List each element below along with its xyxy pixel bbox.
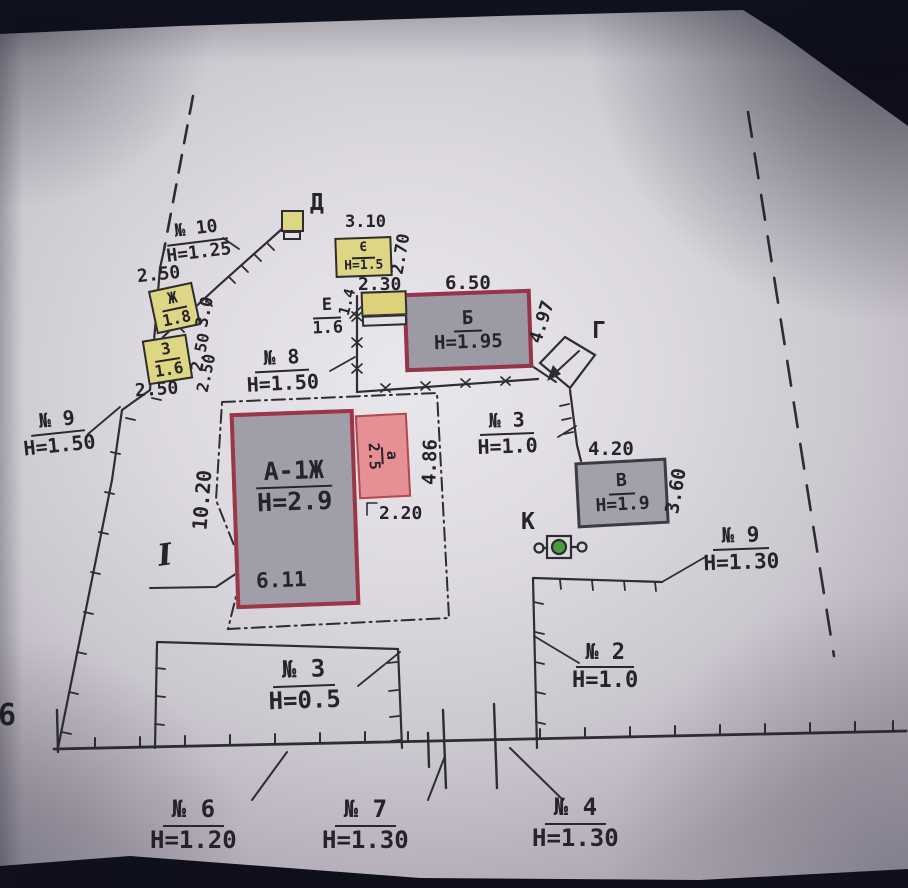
- building-b-height: Н=1.95: [434, 331, 503, 355]
- building-zh: Ж 1.8: [148, 282, 201, 334]
- building-ie: Є Н=1.5: [334, 236, 392, 278]
- building-a-small-height: 2.5: [366, 443, 383, 471]
- leader-n9-right: [662, 556, 707, 582]
- building-d: [281, 210, 304, 232]
- dim-b-top: 6.50: [445, 272, 491, 294]
- building-b-annex-open: [362, 314, 407, 327]
- building-a-small: а 2.5: [355, 413, 411, 500]
- fence-label-3-bottom: № 3 Н=0.5: [267, 655, 341, 716]
- building-v-height: Н=1.9: [595, 493, 650, 516]
- fence-label-3-mid: № 3 Н=1.0: [476, 408, 538, 459]
- fence-label-8: № 8 Н=1.50: [245, 344, 320, 397]
- dim-annex-top: 2.30: [358, 274, 401, 295]
- gate-posts: [57, 704, 497, 788]
- label-d: Д: [310, 190, 324, 216]
- building-a1zh-label: А-1Ж: [255, 455, 332, 489]
- building-v: В Н=1.9: [574, 458, 669, 529]
- fence-left: [58, 250, 164, 748]
- label-g: Г: [592, 318, 606, 344]
- dim-a1-bottom: 6.11: [256, 567, 307, 593]
- building-v-label: В: [607, 471, 635, 496]
- fence-label-9-right: № 9 Н=1.30: [702, 522, 780, 576]
- boundary-bottom: [54, 731, 906, 749]
- building-d-open: [283, 231, 301, 240]
- building-b-label: Б: [453, 307, 481, 332]
- building-b: Б Н=1.95: [403, 289, 534, 372]
- well-symbol: [535, 536, 587, 558]
- dim-zh-above: 2.50: [136, 262, 181, 287]
- label-e-height: 1.6: [312, 318, 343, 339]
- well-green-dot: [552, 540, 566, 554]
- dim-a-below: 2.20: [379, 503, 422, 524]
- leader-n3-bottom: [358, 652, 400, 686]
- site-plan-photo: А-1Ж Н=2.9 а 2.5 Б Н=1.95 Є Н=1.5 Ж 1.8 …: [0, 0, 908, 888]
- boundary-dashed-right: [748, 112, 834, 656]
- building-zh-height: 1.8: [161, 306, 193, 330]
- fence-label-9-left: № 9 Н=1.50: [20, 404, 97, 460]
- plan-linework: [0, 0, 908, 888]
- fence-label-4: № 4 Н=1.30: [532, 794, 619, 852]
- leader-n6: [252, 752, 287, 800]
- label-k: К: [521, 509, 535, 535]
- edge-partial-digit: 6: [0, 698, 16, 733]
- dim-z-below: 2.50: [134, 378, 179, 402]
- fence-label-6: № 6 Н=1.20: [150, 796, 237, 854]
- dim-a-right: 4.86: [418, 439, 442, 486]
- dim-v-top: 4.20: [588, 438, 634, 460]
- building-a1zh-height: Н=2.9: [257, 486, 333, 517]
- fence-label-2: № 2 Н=1.0: [572, 640, 638, 694]
- dim-ie-top: 3.10: [345, 212, 386, 232]
- building-ie-label: Є: [351, 241, 375, 259]
- fence-label-10: № 10 Н=1.25: [163, 215, 233, 267]
- fence-label-7: № 7 Н=1.30: [322, 796, 409, 854]
- building-a-small-label: а: [382, 447, 401, 465]
- building-ie-height: Н=1.5: [344, 258, 384, 274]
- leader-n7: [428, 756, 445, 800]
- dim-bracket-220: [367, 503, 377, 515]
